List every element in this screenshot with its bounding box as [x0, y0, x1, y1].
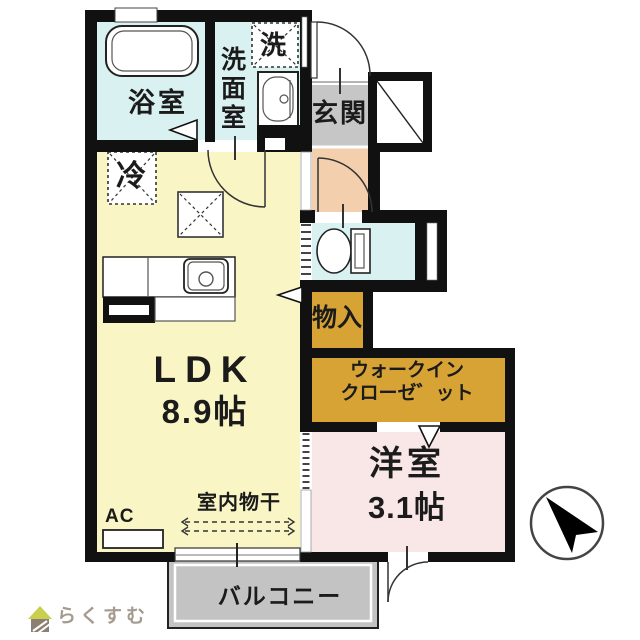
washroom-label: 洗面室: [217, 38, 245, 140]
washbasin-base-slot: [265, 138, 285, 150]
logo-house-icon: [28, 606, 52, 633]
washroom-slit-window: [302, 17, 307, 67]
western-room-label: 洋室: [333, 446, 481, 483]
kitchen-sink-icon: [184, 259, 228, 293]
bathtub-icon: [106, 26, 198, 76]
western-room-exterior-door: [388, 546, 428, 602]
ldk-label: LDK: [130, 350, 280, 391]
wic-label-line2: クローゼ゛ット: [312, 384, 502, 405]
ldk-western-sliding-door: [300, 432, 312, 552]
toilet-icon: [317, 229, 370, 273]
floorplan-page: 浴室 洗 洗面室 玄関 冷 LDK 8.9帖 物入 ウォークイン クローゼ゛ット…: [0, 0, 640, 640]
ac-label: AC: [105, 507, 134, 528]
north-arrow-icon: [531, 487, 603, 559]
toilet-window: [427, 223, 437, 280]
kitchen-partition-slot: [109, 305, 149, 315]
kitchen-counter: [103, 257, 235, 323]
entrance-cabinet: [368, 72, 432, 152]
entrance-door: [311, 22, 370, 94]
western-room-size-label: 3.1帖: [333, 491, 481, 525]
fridge-label: 冷: [116, 160, 146, 193]
ldk-size-label: 8.9帖: [130, 394, 280, 430]
ac-unit-box: [103, 530, 163, 548]
logo-text: らくすむ: [57, 607, 149, 628]
washbasin-icon: [258, 72, 298, 126]
bathroom-label: 浴室: [118, 89, 198, 119]
indoor-drying-label: 室内物干: [183, 492, 295, 514]
washer-label: 洗: [260, 31, 286, 60]
hall-ldk-opening: [301, 152, 311, 210]
bathroom-window: [115, 8, 157, 22]
kitchen-counter-return: [155, 297, 235, 321]
balcony-label: バルコニー: [198, 584, 362, 609]
storage-label: 物入: [308, 305, 366, 333]
entrance-label: 玄関: [312, 99, 368, 128]
counter-space-icon: [178, 192, 223, 237]
toilet-side-hatch: [300, 223, 312, 280]
wic-label-line1: ウォークイン: [312, 361, 502, 382]
